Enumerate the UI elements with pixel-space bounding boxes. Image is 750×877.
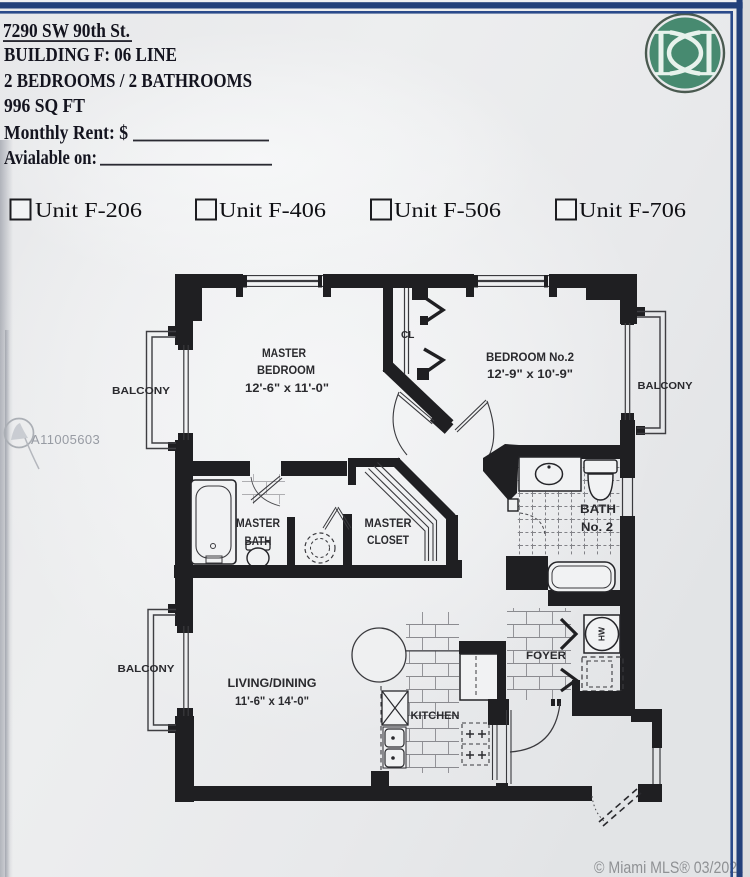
- svg-text:© Miami MLS® 03/2021: © Miami MLS® 03/2021: [594, 859, 745, 877]
- svg-text:A11005603: A11005603: [31, 432, 100, 447]
- svg-text:HW: HW: [596, 626, 606, 641]
- svg-text:BALCONY: BALCONY: [112, 385, 170, 397]
- svg-text:MASTER: MASTER: [365, 518, 413, 530]
- svg-text:BATH: BATH: [245, 536, 272, 548]
- svg-text:Unit F-706: Unit F-706: [579, 198, 686, 222]
- svg-text:BEDROOM: BEDROOM: [257, 365, 315, 377]
- svg-text:12'-6" x 11'-0": 12'-6" x 11'-0": [245, 381, 329, 395]
- svg-text:Avialable on:: Avialable on:: [4, 148, 97, 169]
- svg-text:CLOSET: CLOSET: [367, 535, 409, 547]
- svg-text:MASTER: MASTER: [236, 518, 281, 530]
- svg-text:BALCONY: BALCONY: [638, 380, 693, 392]
- svg-text:2 BEDROOMS / 2 BATHROOMS: 2 BEDROOMS / 2 BATHROOMS: [4, 71, 252, 92]
- svg-text:Unit F-206: Unit F-206: [35, 198, 142, 222]
- svg-text:MASTER: MASTER: [262, 348, 307, 360]
- svg-text:LIVING/DINING: LIVING/DINING: [228, 678, 317, 690]
- svg-text:7290 SW 90th St.: 7290 SW 90th St.: [3, 21, 130, 42]
- svg-text:KITCHEN: KITCHEN: [411, 710, 460, 722]
- svg-text:BUILDING F: 06 LINE: BUILDING F: 06 LINE: [4, 45, 177, 66]
- svg-text:CL: CL: [401, 330, 414, 341]
- svg-text:12'-9" x 10'-9": 12'-9" x 10'-9": [487, 367, 573, 381]
- svg-text:FOYER: FOYER: [526, 650, 566, 662]
- svg-text:BEDROOM No.2: BEDROOM No.2: [486, 352, 574, 364]
- svg-text:11'-6" x 14'-0": 11'-6" x 14'-0": [235, 694, 309, 708]
- svg-text:No. 2: No. 2: [581, 522, 613, 534]
- svg-text:996 SQ FT: 996 SQ FT: [4, 96, 85, 117]
- svg-text:BATH: BATH: [580, 504, 616, 516]
- svg-text:Monthly Rent: $: Monthly Rent: $: [4, 123, 128, 144]
- svg-text:Unit F-506: Unit F-506: [394, 198, 501, 222]
- svg-text:BALCONY: BALCONY: [118, 663, 175, 675]
- svg-text:Unit F-406: Unit F-406: [219, 198, 326, 222]
